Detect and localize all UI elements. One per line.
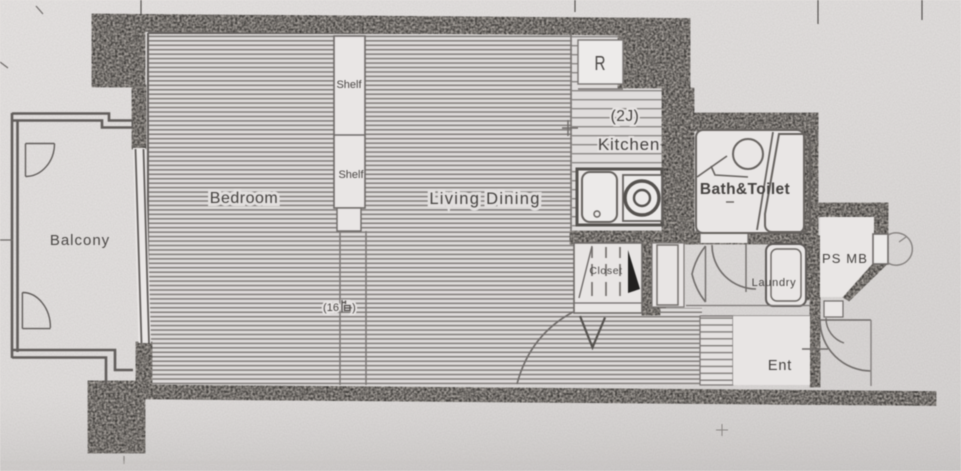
svg-text:Closet: Closet xyxy=(589,265,622,277)
svg-text:(2J): (2J) xyxy=(611,108,640,125)
svg-text:R: R xyxy=(595,53,606,75)
svg-text:Laundry: Laundry xyxy=(752,277,797,289)
svg-text:Bath&Toilet: Bath&Toilet xyxy=(700,181,790,198)
svg-text:PS MB: PS MB xyxy=(822,251,868,266)
svg-text:Shelf: Shelf xyxy=(338,169,364,181)
svg-text:Shelf: Shelf xyxy=(336,79,362,91)
svg-text:Ent: Ent xyxy=(768,358,792,374)
svg-text:Kitchen: Kitchen xyxy=(598,135,660,154)
svg-text:Balcony: Balcony xyxy=(50,232,110,249)
svg-text:): ) xyxy=(352,302,356,314)
svg-text:Living Dining: Living Dining xyxy=(429,190,540,208)
svg-text:(16: (16 xyxy=(323,302,339,314)
svg-text:Bedroom: Bedroom xyxy=(210,190,278,207)
